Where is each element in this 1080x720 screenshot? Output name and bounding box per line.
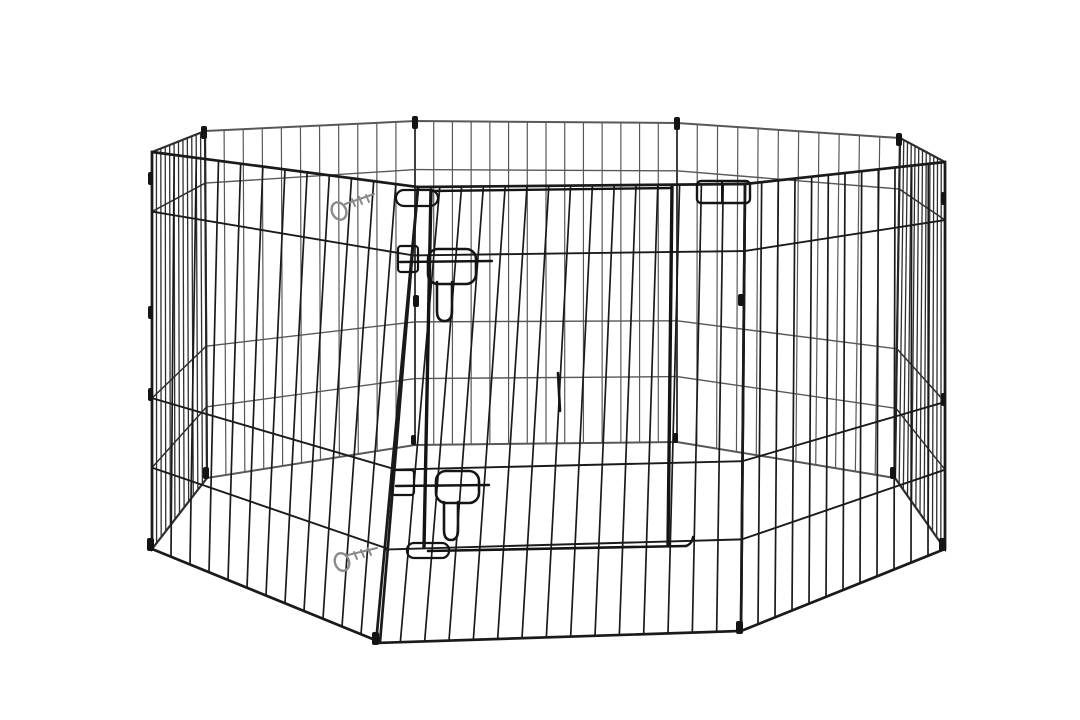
hinge-mark [738, 294, 744, 306]
hinge-mark [201, 126, 207, 139]
foot-cap [147, 538, 154, 551]
foot-cap [203, 467, 209, 479]
foot-cap [372, 632, 379, 645]
upper-latch-bar [400, 261, 492, 262]
door-post-left [424, 190, 431, 547]
product-photo [0, 0, 1080, 720]
panel-side-left [152, 131, 207, 549]
lower-latch-plate [436, 471, 479, 503]
snap-clip-lower-arm [348, 548, 377, 559]
upper-latch-slider [437, 282, 452, 321]
exercise-pen-illustration [0, 0, 1080, 720]
lower-latch-slider [444, 502, 458, 540]
hinge-mark [941, 192, 946, 205]
hinge-mark [896, 133, 902, 146]
hinge-mark [674, 117, 680, 130]
hinge-mark [148, 306, 153, 319]
foot-cap [736, 621, 743, 634]
foot-cap [890, 467, 896, 479]
panel-side-right [895, 138, 945, 549]
lower-latch-bar [396, 485, 489, 486]
hinge-mark [148, 172, 153, 185]
hinge-mark [412, 116, 418, 129]
foot-cap [939, 538, 946, 551]
foot-cap [673, 433, 678, 443]
hinge-mark [148, 388, 153, 401]
hinge-mark [941, 393, 946, 406]
foot-cap [411, 435, 416, 445]
hinge-mark [413, 295, 419, 307]
